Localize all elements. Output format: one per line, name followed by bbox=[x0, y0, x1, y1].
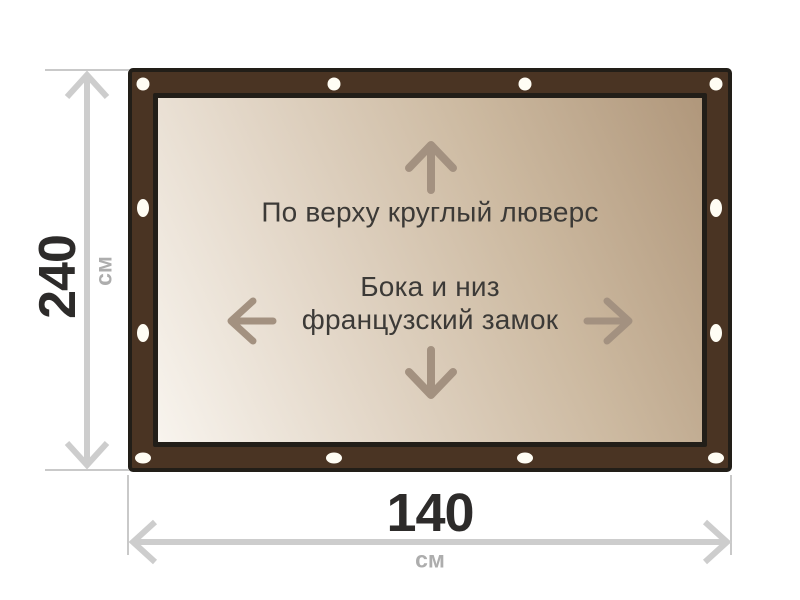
arrow-down-icon bbox=[399, 344, 463, 402]
arrow-right-icon bbox=[582, 296, 634, 346]
height-unit: см bbox=[91, 256, 118, 286]
center-fastening-label-line2: французский замок bbox=[302, 303, 558, 336]
width-unit: см bbox=[415, 547, 445, 574]
top-fastening-label: По верху круглый люверс bbox=[261, 196, 598, 229]
eyelet bbox=[137, 199, 149, 217]
eyelet bbox=[326, 453, 342, 464]
eyelet bbox=[708, 453, 724, 464]
eyelet bbox=[137, 78, 150, 91]
center-fastening-label-line1: Бока и низ bbox=[302, 270, 558, 303]
eyelet bbox=[135, 453, 151, 464]
banner-frame: По верху круглый люверс Бока и низ франц… bbox=[128, 68, 732, 472]
eyelet bbox=[710, 324, 722, 342]
width-value: 140 bbox=[386, 482, 473, 544]
center-fastening-label: Бока и низ французский замок bbox=[302, 270, 558, 336]
eyelet bbox=[137, 324, 149, 342]
arrow-left-icon bbox=[226, 296, 278, 346]
product-dimension-diagram: По верху круглый люверс Бока и низ франц… bbox=[0, 0, 800, 600]
arrow-up-icon bbox=[399, 138, 463, 196]
eyelet bbox=[519, 78, 532, 91]
eyelet bbox=[328, 78, 341, 91]
banner-canvas: По верху круглый люверс Бока и низ франц… bbox=[153, 93, 707, 447]
eyelet bbox=[517, 453, 533, 464]
height-value: 240 bbox=[28, 235, 88, 319]
eyelet bbox=[710, 78, 723, 91]
eyelet bbox=[710, 199, 722, 217]
